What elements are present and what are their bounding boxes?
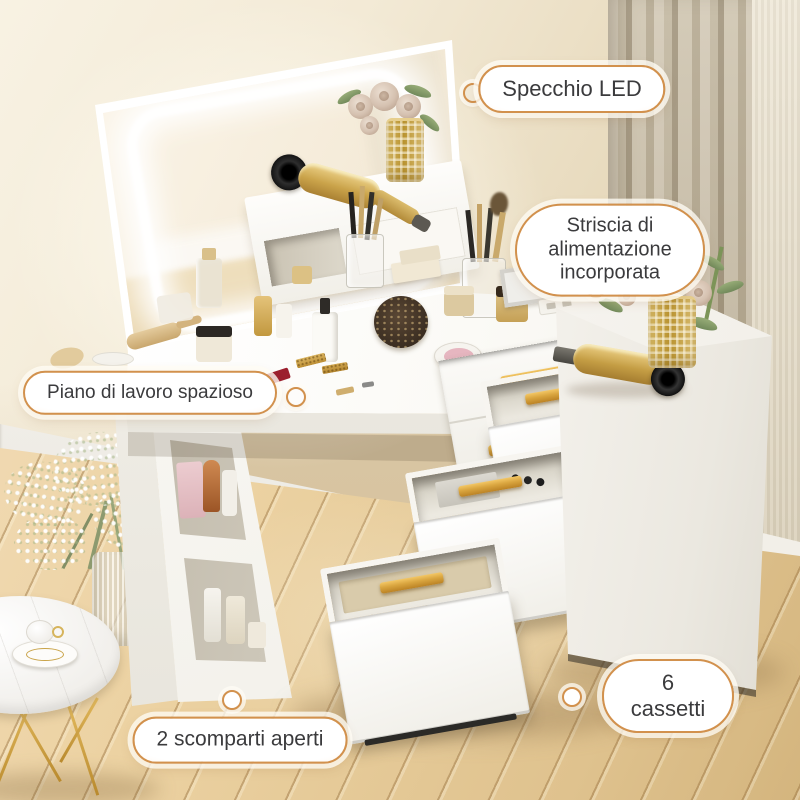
rose (360, 116, 379, 135)
stored-pink-box (176, 461, 206, 519)
callout-label: 2 scomparti aperti (157, 728, 324, 753)
callout-label: Piano di lavoro spazioso (47, 382, 253, 404)
powder-jar (444, 292, 474, 316)
makeup-brush (477, 204, 482, 262)
callout-worktop: Piano di lavoro spazioso (23, 371, 277, 415)
open-drawer (320, 538, 530, 745)
dropper-top (320, 298, 330, 314)
stored-cream-bottle (226, 596, 245, 644)
stored-white-bottle (222, 470, 237, 516)
small-gold-jar (292, 266, 312, 284)
stored-jar (248, 622, 266, 648)
makeup-jar-lid (196, 326, 232, 337)
teacup-handle (52, 626, 64, 638)
callout-open-shelves: 2 scomparti aperti (133, 717, 348, 764)
round-makeup-case (374, 296, 428, 348)
callout-drawers: 6 cassetti (602, 659, 734, 733)
power-outlet (546, 302, 556, 309)
callout-mirror-led: Specchio LED (478, 65, 665, 113)
rose (370, 82, 399, 111)
brush-cup (346, 234, 384, 288)
vanity-product-annotated-photo: Specchio LED Striscia di alimentazione i… (0, 0, 800, 800)
bead (523, 476, 532, 485)
stored-copper-bottle (203, 460, 220, 512)
callout-label: Striscia di alimentazione incorporata (539, 215, 681, 286)
callout-power-strip: Striscia di alimentazione incorporata (515, 204, 705, 297)
stored-pump-bottle (204, 588, 221, 642)
powder-jar-lid (444, 286, 474, 295)
small-dish (92, 352, 134, 366)
callout-marker-worktop (286, 387, 306, 407)
gold-mesh-vase (648, 296, 696, 368)
bead (536, 477, 545, 486)
flat-bottle (156, 292, 194, 324)
saucer-gold-ring (26, 648, 64, 661)
callout-label: Specchio LED (502, 76, 641, 102)
babys-breath-cluster (14, 516, 88, 570)
perfume-cap (202, 248, 216, 260)
callout-label: 6 cassetti (626, 670, 710, 722)
white-tube (276, 304, 292, 338)
teacup (26, 620, 54, 644)
rose (396, 94, 421, 119)
perfume-bottle (196, 258, 222, 308)
callout-marker-open-shelves (222, 690, 242, 710)
callout-marker-drawers (562, 687, 582, 707)
gold-bottle (254, 296, 272, 336)
